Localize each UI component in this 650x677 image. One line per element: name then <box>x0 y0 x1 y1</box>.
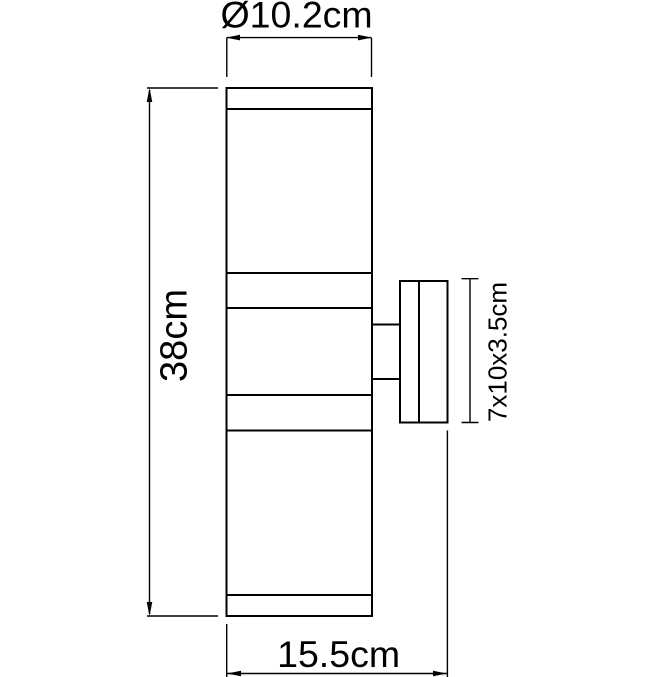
svg-text:38cm: 38cm <box>154 289 196 382</box>
svg-text:15.5cm: 15.5cm <box>277 633 400 675</box>
svg-text:Ø10.2cm: Ø10.2cm <box>221 0 373 36</box>
svg-text:7x10x3.5cm: 7x10x3.5cm <box>483 282 513 422</box>
